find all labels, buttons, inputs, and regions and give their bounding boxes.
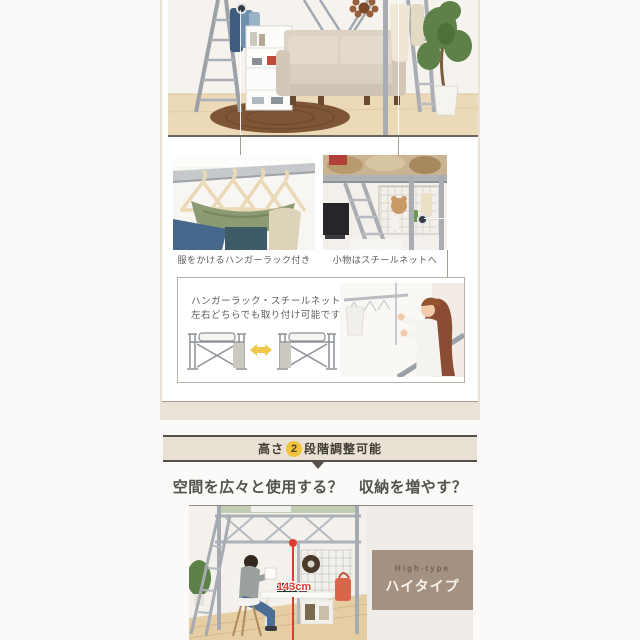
measurement-line-upper — [292, 547, 294, 581]
high-type-label-box: High-type ハイタイプ — [372, 550, 473, 610]
mounting-info-box: ハンガーラック・スチールネットは 左右どちらでも取り付け可能です。 — [177, 277, 465, 383]
room-photo — [168, 0, 478, 137]
callout-line-box-gap — [447, 250, 448, 277]
mounting-note: ハンガーラック・スチールネットは 左右どちらでも取り付け可能です。 — [191, 295, 351, 323]
mounting-demo-illustration — [340, 283, 464, 377]
callout-dot-hanger — [236, 3, 247, 14]
banner-pointer-triangle — [312, 462, 324, 469]
banner-number-badge: 2 — [286, 441, 302, 457]
hanger-rack-illustration — [173, 155, 315, 250]
callout-line-net-photo — [398, 0, 399, 135]
product-description-image: 服をかけるハンガーラック付き 小物はスチールネットへ ハンガーラック・スチールネ… — [0, 0, 640, 640]
banner-prefix: 高さ — [258, 440, 284, 457]
high-type-label-en: High-type — [395, 564, 450, 573]
mounting-note-line1: ハンガーラック・スチールネットは — [191, 295, 351, 309]
hanger-rack-photo — [173, 155, 315, 250]
measurement-line-lower — [292, 597, 294, 640]
height-banner: 高さ 2 段階調整可能 — [163, 435, 477, 462]
callout-line-hanger-gap — [240, 137, 241, 155]
measurement-dot — [289, 539, 297, 547]
measurement-label: 143cm — [268, 581, 320, 593]
bed-side-diagrams — [186, 328, 338, 377]
callout-line-hanger-photo — [240, 10, 241, 135]
callout-line-box-horizontal — [424, 218, 447, 219]
steel-net-illustration — [323, 155, 447, 250]
section-heading: 空間を広々と使用する？ 収納を増やす？ — [160, 476, 480, 497]
high-type-room-photo — [189, 506, 367, 640]
callout-line-net-gap — [398, 137, 399, 155]
mounting-note-line2: 左右どちらでも取り付け可能です。 — [191, 309, 351, 323]
room-photo-illustration — [168, 0, 478, 135]
high-type-label-ja: ハイタイプ — [385, 576, 459, 596]
callout-line-box-photo — [447, 218, 448, 250]
banner-suffix: 段階調整可能 — [304, 440, 382, 457]
callout-dot-net — [417, 214, 428, 225]
high-type-room-illustration — [189, 506, 367, 640]
steel-net-photo — [323, 155, 447, 250]
caption-steel-net: 小物はスチールネットへ — [323, 253, 447, 266]
caption-hanger-rack: 服をかけるハンガーラック付き — [173, 253, 315, 266]
mounting-demo-photo — [340, 283, 464, 377]
bed-diagrams-illustration — [186, 328, 338, 372]
